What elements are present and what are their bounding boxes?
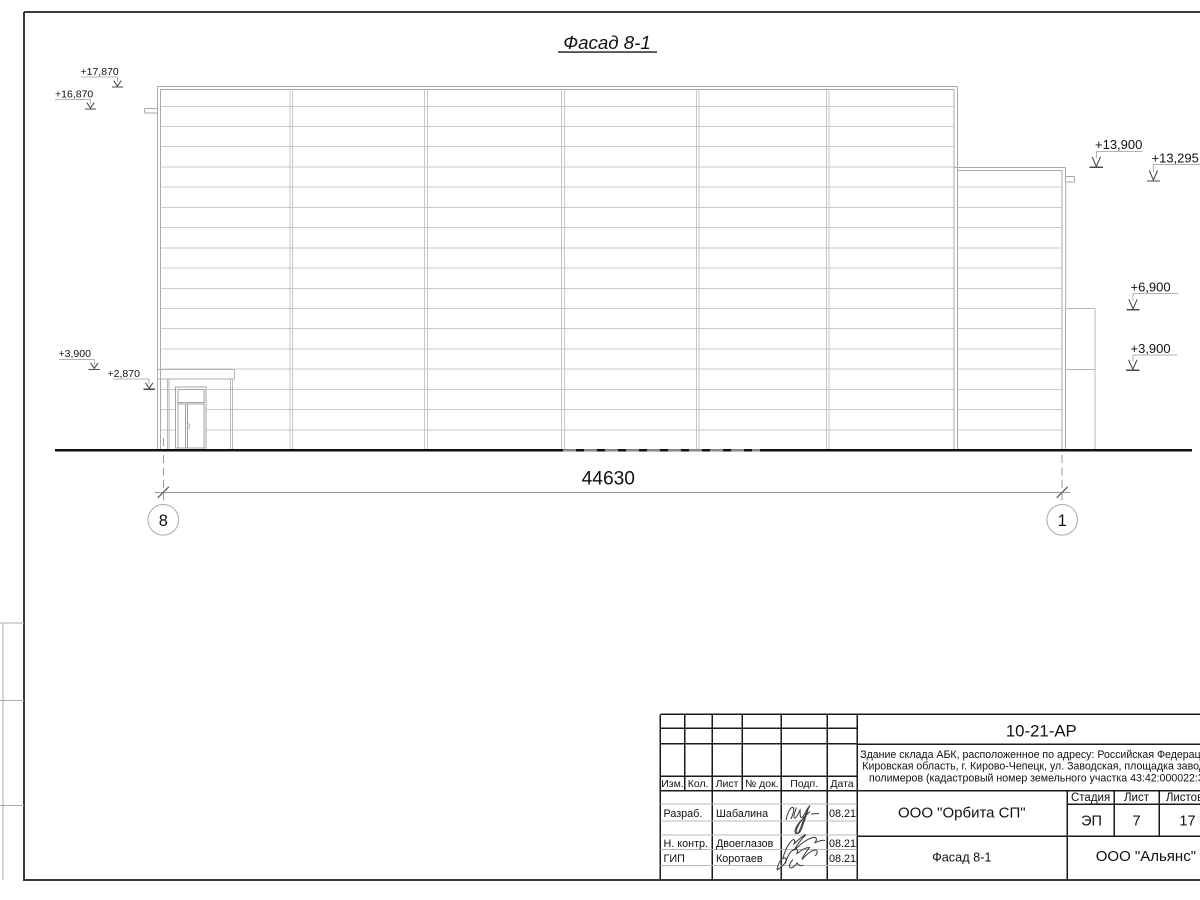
svg-text:Фасад 8-1: Фасад 8-1: [932, 850, 991, 864]
svg-text:08.21: 08.21: [829, 838, 856, 850]
svg-text:+13,295: +13,295: [1152, 150, 1199, 165]
svg-text:+16,870: +16,870: [55, 88, 93, 100]
svg-text:Коротаев: Коротаев: [716, 853, 763, 865]
svg-text:ООО "Альянс": ООО "Альянс": [1096, 848, 1196, 865]
svg-text:Двоеглазов: Двоеглазов: [716, 838, 774, 850]
svg-text:Кировская область, г. Кирово-Ч: Кировская область, г. Кирово-Чепецк, ул.…: [862, 761, 1200, 773]
svg-text:08.21: 08.21: [829, 808, 856, 820]
svg-text:полимеров (кадастровый номер з: полимеров (кадастровый номер земельного …: [869, 772, 1200, 784]
svg-text:Изм.: Изм.: [661, 778, 684, 790]
svg-text:+2,870: +2,870: [108, 368, 141, 380]
svg-text:17: 17: [1179, 813, 1195, 829]
svg-text:№ док.: № док.: [745, 778, 779, 790]
svg-text:Подп.: Подп.: [790, 778, 818, 790]
svg-text:Стадия: Стадия: [1071, 792, 1110, 804]
svg-text:10-21-АР: 10-21-АР: [1006, 721, 1077, 740]
svg-text:+3,900: +3,900: [1131, 341, 1171, 356]
svg-text:Здание склада АБК, расположенн: Здание склада АБК, расположенное по адре…: [860, 749, 1200, 761]
svg-text:Н. контр.: Н. контр.: [664, 838, 709, 850]
svg-text:+13,900: +13,900: [1095, 137, 1142, 152]
svg-text:Листов: Листов: [1166, 792, 1200, 804]
svg-text:ЭП: ЭП: [1081, 813, 1102, 829]
svg-text:Шабалина: Шабалина: [716, 808, 768, 820]
svg-text:Дата: Дата: [830, 778, 853, 790]
svg-text:7: 7: [1132, 813, 1140, 829]
svg-text:ГИП: ГИП: [664, 853, 685, 865]
svg-text:Разраб.: Разраб.: [664, 808, 703, 820]
svg-text:08.21: 08.21: [829, 853, 856, 865]
svg-text:8: 8: [159, 512, 168, 530]
svg-text:+17,870: +17,870: [81, 66, 119, 78]
svg-text:+6,900: +6,900: [1131, 279, 1171, 294]
svg-text:Лист: Лист: [1124, 792, 1150, 804]
svg-text:1: 1: [1058, 512, 1067, 530]
svg-text:44630: 44630: [582, 468, 635, 489]
svg-text:+3,900: +3,900: [59, 348, 92, 360]
svg-text:Лист: Лист: [716, 778, 739, 790]
svg-text:Фасад 8-1: Фасад 8-1: [563, 32, 651, 53]
svg-text:Кол.: Кол.: [688, 778, 709, 790]
svg-text:ООО "Орбита СП": ООО "Орбита СП": [898, 805, 1026, 822]
